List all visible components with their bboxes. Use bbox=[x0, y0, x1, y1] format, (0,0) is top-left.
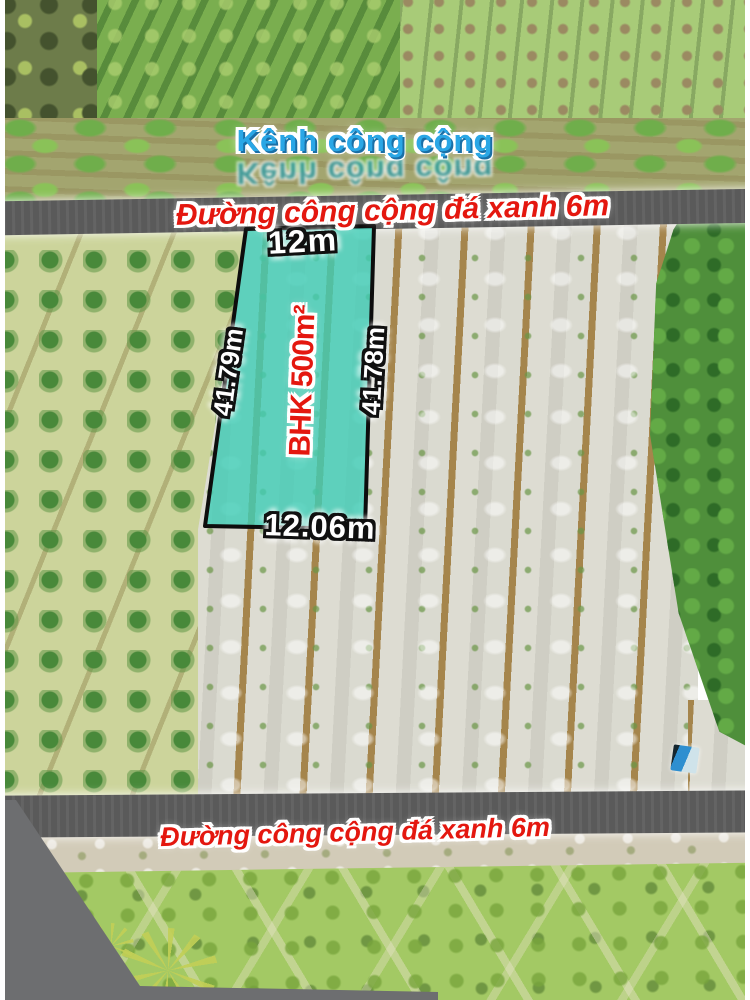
plot-right-edge-label: 41.78m bbox=[353, 310, 393, 432]
aerial-photo-canvas: 12m 41.79m 41.78m 12.06m BHK 500m² Đường… bbox=[0, 0, 750, 1000]
photo-edge-right bbox=[745, 0, 750, 1000]
canal-label: Kênh công cộng bbox=[215, 120, 515, 162]
photo-edge-left bbox=[0, 0, 5, 1000]
plot-area-label: BHK 500m² bbox=[280, 300, 326, 461]
plot-bottom-edge-label: 12.06m bbox=[219, 504, 420, 551]
small-shed bbox=[670, 744, 699, 773]
